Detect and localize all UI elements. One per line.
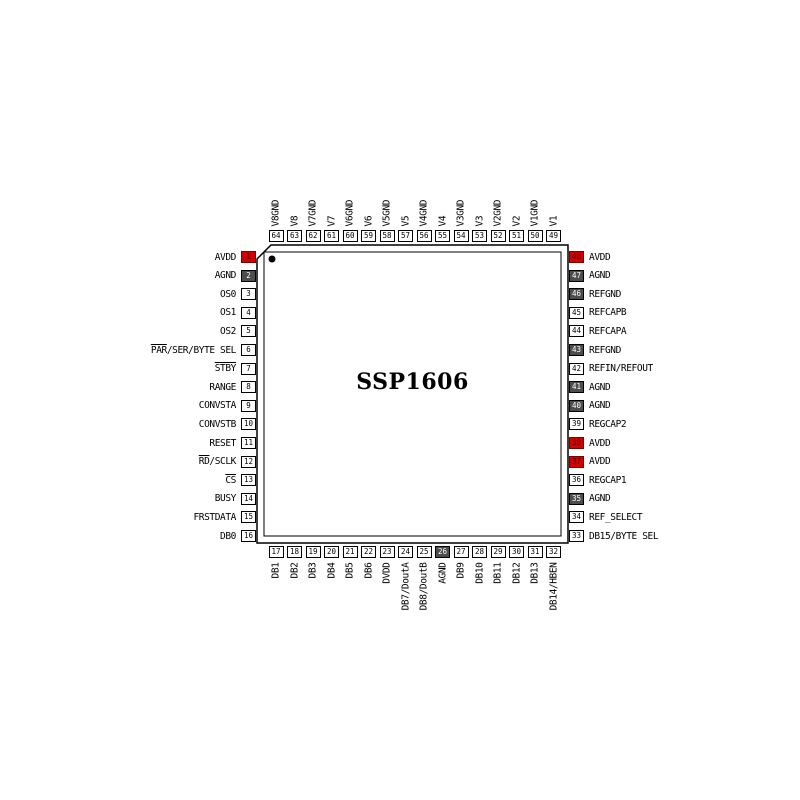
pin-label-38: AVDD xyxy=(589,437,739,450)
pin-label-53: V3 xyxy=(473,136,486,226)
pin-box-28: 28 xyxy=(472,546,487,558)
pin-label-11: RESET xyxy=(86,437,236,450)
pin-box-60: 60 xyxy=(343,230,358,242)
pin-box-32: 32 xyxy=(546,546,561,558)
pin-label-58: V5GND xyxy=(381,136,394,226)
pin-label-44: REFCAPA xyxy=(589,325,739,338)
pin-label-4: OS1 xyxy=(86,306,236,319)
pin-box-51: 51 xyxy=(509,230,524,242)
pin-label-22: DB6 xyxy=(362,562,375,652)
pin-box-10: 10 xyxy=(241,418,256,430)
pin-box-44: 44 xyxy=(569,325,584,337)
pin-box-64: 64 xyxy=(269,230,284,242)
pin-box-18: 18 xyxy=(287,546,302,558)
pin-label-55: V4 xyxy=(436,136,449,226)
pin-box-20: 20 xyxy=(324,546,339,558)
pin-label-54: V3GND xyxy=(455,136,468,226)
pin-label-10: CONVSTB xyxy=(86,418,236,431)
pin-label-47: AGND xyxy=(589,269,739,282)
pin-box-1: 1 xyxy=(241,251,256,263)
pin-label-20: DB4 xyxy=(325,562,338,652)
pin-box-9: 9 xyxy=(241,400,256,412)
pin-label-29: DB11 xyxy=(492,562,505,652)
pin-label-30: DB12 xyxy=(510,562,523,652)
pin-box-58: 58 xyxy=(380,230,395,242)
pin-box-33: 33 xyxy=(569,530,584,542)
pin-box-54: 54 xyxy=(454,230,469,242)
pin-box-63: 63 xyxy=(287,230,302,242)
pin-label-60: V6GND xyxy=(344,136,357,226)
pin-box-24: 24 xyxy=(398,546,413,558)
pin-label-overline: STBY xyxy=(215,363,236,374)
pin-label-6: PAR/SER/BYTE SEL xyxy=(86,344,236,357)
pin-label-26: AGND xyxy=(436,562,449,652)
pin-label-37: AVDD xyxy=(589,455,739,468)
pin-box-41: 41 xyxy=(569,381,584,393)
pin-box-4: 4 xyxy=(241,307,256,319)
pin-label-3: OS0 xyxy=(86,288,236,301)
pin-box-57: 57 xyxy=(398,230,413,242)
pin-label-5: OS2 xyxy=(86,325,236,338)
pin-box-22: 22 xyxy=(361,546,376,558)
pin-box-39: 39 xyxy=(569,418,584,430)
pin-label-27: DB9 xyxy=(455,562,468,652)
pin-label-16: DB0 xyxy=(86,530,236,543)
pin-box-13: 13 xyxy=(241,474,256,486)
pin-box-29: 29 xyxy=(491,546,506,558)
pin-label-45: REFCAPB xyxy=(589,306,739,319)
pin-label-39: REGCAP2 xyxy=(589,418,739,431)
pin-label-49: V1 xyxy=(547,136,560,226)
pin-box-38: 38 xyxy=(569,437,584,449)
pin-box-16: 16 xyxy=(241,530,256,542)
pin-box-14: 14 xyxy=(241,493,256,505)
pin-box-30: 30 xyxy=(509,546,524,558)
pin-label-33: DB15/BYTE SEL xyxy=(589,530,739,543)
pin-box-36: 36 xyxy=(569,474,584,486)
pin-label-17: DB1 xyxy=(270,562,283,652)
pin-label-overline: PAR xyxy=(151,345,167,356)
pin-label-51: V2 xyxy=(510,136,523,226)
pin-label-42: REFIN/REFOUT xyxy=(589,362,739,375)
pin-box-23: 23 xyxy=(380,546,395,558)
pin-label-36: REGCAP1 xyxy=(589,474,739,487)
pin-box-6: 6 xyxy=(241,344,256,356)
pin-label-57: V5 xyxy=(399,136,412,226)
pin-label-overline: RD xyxy=(199,456,210,467)
pin-box-35: 35 xyxy=(569,493,584,505)
pin-box-37: 37 xyxy=(569,456,584,468)
pin-box-21: 21 xyxy=(343,546,358,558)
pin-box-52: 52 xyxy=(491,230,506,242)
chip-title: SSP1606 xyxy=(257,369,568,395)
pin-label-21: DB5 xyxy=(344,562,357,652)
pin-box-59: 59 xyxy=(361,230,376,242)
pin-label-35: AGND xyxy=(589,492,739,505)
pin-box-43: 43 xyxy=(569,344,584,356)
pin-label-24: DB7/DoutA xyxy=(399,562,412,652)
pin-label-63: V8 xyxy=(288,136,301,226)
pin-box-47: 47 xyxy=(569,270,584,282)
pin-label-18: DB2 xyxy=(288,562,301,652)
pin-box-46: 46 xyxy=(569,288,584,300)
pin-label-34: REF_SELECT xyxy=(589,511,739,524)
pin-box-8: 8 xyxy=(241,381,256,393)
pin-label-59: V6 xyxy=(362,136,375,226)
pin-box-27: 27 xyxy=(454,546,469,558)
pin-box-7: 7 xyxy=(241,363,256,375)
pin-label-13: CS xyxy=(86,474,236,487)
pin-label-8: RANGE xyxy=(86,381,236,394)
pin-label-7: STBY xyxy=(86,362,236,375)
pin-label-41: AGND xyxy=(589,381,739,394)
pin-label-9: CONVSTA xyxy=(86,399,236,412)
pin-label-40: AGND xyxy=(589,399,739,412)
pin-box-62: 62 xyxy=(306,230,321,242)
pin-label-46: REFGND xyxy=(589,288,739,301)
pinout-diagram: SSP1606 1AVDD2AGND3OS04OS15OS26PAR/SER/B… xyxy=(0,0,800,800)
pin-label-15: FRSTDATA xyxy=(86,511,236,524)
pin-box-48: 48 xyxy=(569,251,584,263)
pin-label-31: DB13 xyxy=(529,562,542,652)
pin-label-12: RD/SCLK xyxy=(86,455,236,468)
pin-box-11: 11 xyxy=(241,437,256,449)
pin-box-34: 34 xyxy=(569,511,584,523)
pin-label-23: DVDD xyxy=(381,562,394,652)
pin-box-56: 56 xyxy=(417,230,432,242)
pin-box-19: 19 xyxy=(306,546,321,558)
pin-box-61: 61 xyxy=(324,230,339,242)
pin-box-26: 26 xyxy=(435,546,450,558)
pin-label-overline: CS xyxy=(225,475,236,486)
pin-box-17: 17 xyxy=(269,546,284,558)
pin-box-53: 53 xyxy=(472,230,487,242)
pin-label-61: V7 xyxy=(325,136,338,226)
pin-box-40: 40 xyxy=(569,400,584,412)
pin-box-42: 42 xyxy=(569,363,584,375)
pin-label-14: BUSY xyxy=(86,492,236,505)
pin-box-3: 3 xyxy=(241,288,256,300)
pin-box-55: 55 xyxy=(435,230,450,242)
pin-box-49: 49 xyxy=(546,230,561,242)
pin-label-2: AGND xyxy=(86,269,236,282)
pin-box-15: 15 xyxy=(241,511,256,523)
pin-box-12: 12 xyxy=(241,456,256,468)
pin-label-28: DB10 xyxy=(473,562,486,652)
pin-label-32: DB14/HBEN xyxy=(547,562,560,652)
pin-label-25: DB8/DoutB xyxy=(418,562,431,652)
pin-label-62: V7GND xyxy=(307,136,320,226)
pin-label-43: REFGND xyxy=(589,344,739,357)
pin-label-64: V8GND xyxy=(270,136,283,226)
pin-box-50: 50 xyxy=(528,230,543,242)
pin-label-56: V4GND xyxy=(418,136,431,226)
pin-label-1: AVDD xyxy=(86,251,236,264)
pin-box-45: 45 xyxy=(569,307,584,319)
pin-box-2: 2 xyxy=(241,270,256,282)
pin-label-48: AVDD xyxy=(589,251,739,264)
pin-box-31: 31 xyxy=(528,546,543,558)
pin-label-50: V1GND xyxy=(529,136,542,226)
pin-1-indicator-dot xyxy=(269,256,276,263)
pin-label-52: V2GND xyxy=(492,136,505,226)
pin-label-19: DB3 xyxy=(307,562,320,652)
pin-box-5: 5 xyxy=(241,325,256,337)
pin-box-25: 25 xyxy=(417,546,432,558)
